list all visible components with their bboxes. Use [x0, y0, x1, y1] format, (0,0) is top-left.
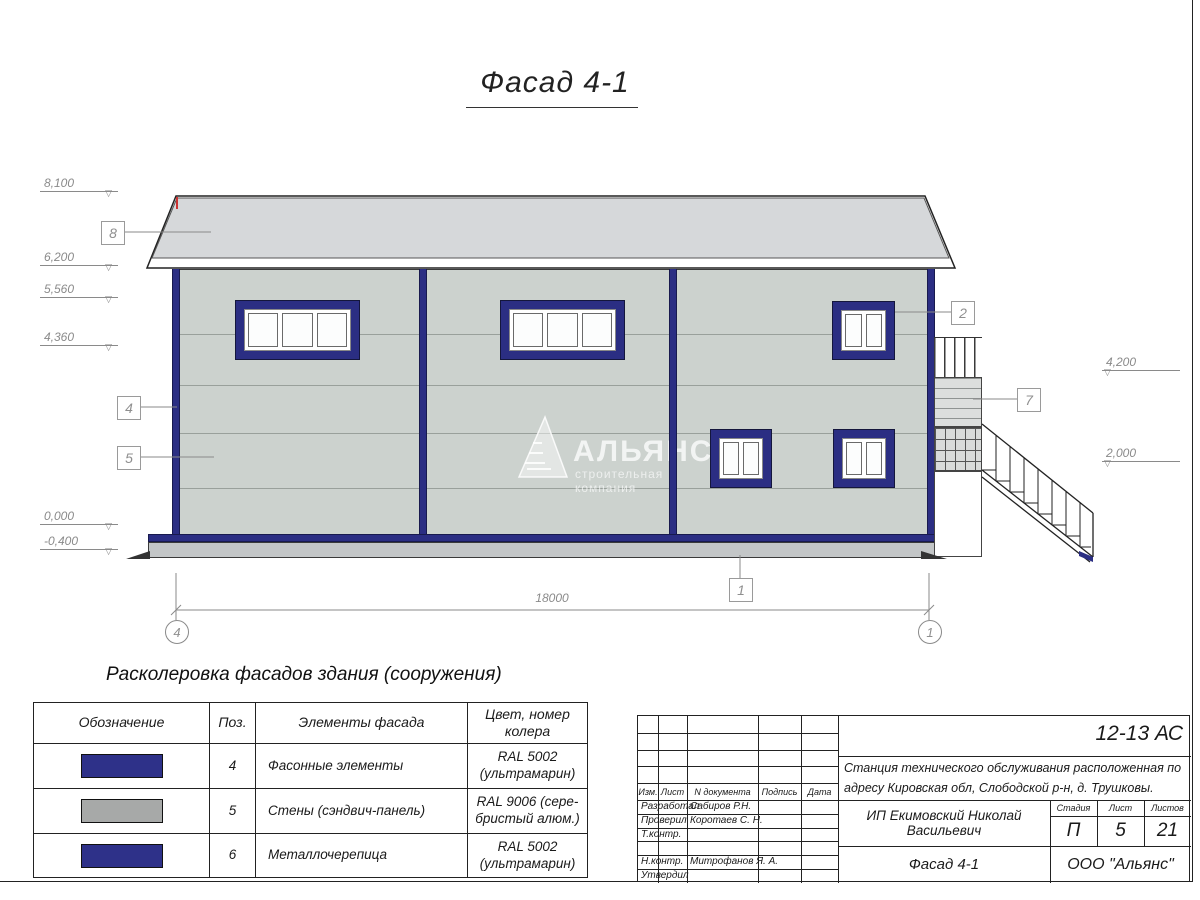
callout-box-plinth: 1: [729, 578, 753, 602]
swatch-ultramarine: [81, 844, 163, 868]
callout-box-wall: 5: [117, 446, 141, 470]
tb-col-sign: Подпись: [758, 783, 801, 800]
elevation-flag-icon: ▽: [105, 294, 112, 305]
elevation-mark: 4,360▽: [40, 330, 118, 346]
watermark-name: АЛЬЯНС: [573, 435, 713, 469]
callout-box-corner: 4: [117, 396, 141, 420]
callout-box-roof: 8: [101, 221, 125, 245]
callout-box-stair: 7: [1017, 388, 1041, 412]
window-pane: [845, 314, 862, 347]
tb-sheets-label: Листов: [1144, 800, 1191, 816]
elevation-mark: 2,000▽: [1102, 446, 1180, 462]
window-pane: [723, 442, 739, 475]
legend-col-pos: Поз.: [210, 703, 256, 744]
legend-col-designation: Обозначение: [34, 703, 210, 744]
window-pane: [866, 442, 882, 475]
tb-staff-role: Н.контр.: [641, 855, 683, 869]
window-lower-1: [710, 429, 772, 488]
tb-staff-name: Митрофанов Я. А.: [690, 855, 778, 869]
drawing-sheet: Фасад 4-1 АЛЬЯНС строительная компания: [0, 0, 1200, 900]
stair-foot: [1079, 551, 1093, 562]
panel-joint-line: [172, 385, 935, 386]
plinth: [148, 542, 935, 558]
panel-joint-line: [172, 488, 935, 489]
window-pane: [582, 313, 612, 347]
window-pane: [513, 313, 543, 347]
tb-line: [638, 750, 838, 751]
axis-bubble-right: 1: [918, 620, 942, 644]
facade-band-mid1: [419, 269, 427, 535]
facade-band-mid2: [669, 269, 677, 535]
tb-company: ООО "Альянс": [1050, 846, 1191, 883]
elevation-mark: 5,560▽: [40, 282, 118, 298]
tb-col-date: Дата: [801, 783, 838, 800]
tb-staff-name: Коротаев С. Н.: [690, 814, 763, 828]
drawing-title-underline: [466, 107, 638, 108]
swatch-silver: [81, 799, 163, 823]
tb-project-description: Станция технического обслуживания распол…: [844, 758, 1188, 798]
tb-sheet-label: Лист: [1097, 800, 1144, 816]
window-pane: [866, 314, 883, 347]
tb-staff-role: Утвердил: [641, 869, 689, 883]
legend-row-pos: 6: [210, 834, 256, 877]
facade-band-left: [172, 269, 180, 535]
legend-row-pos: 5: [210, 789, 256, 834]
tb-col-doc: N документа: [687, 783, 758, 800]
window-lower-2: [833, 429, 895, 488]
legend-row-color: RAL 5002 (ультрамарин): [468, 834, 587, 877]
landing-railing: [934, 337, 982, 378]
window-pane: [282, 313, 312, 347]
tb-staff-role: Проверил: [641, 814, 687, 828]
window-pane: [547, 313, 577, 347]
elevation-mark: 4,200▽: [1102, 355, 1180, 371]
tb-doc-code: 12-13 АС: [838, 722, 1183, 746]
legend-row-swatch: [34, 744, 210, 789]
legend-col-color: Цвет, номер колера: [468, 703, 587, 744]
tb-client: ИП Екимовский Николай Васильевич: [838, 800, 1050, 846]
elevation-flag-icon: ▽: [105, 262, 112, 273]
elevation-mark: 0,000▽: [40, 509, 118, 525]
watermark-pyramid-icon: [505, 413, 571, 483]
elevation-flag-icon: ▽: [1104, 367, 1111, 378]
elevation-flag-icon: ▽: [105, 188, 112, 199]
watermark-tagline: строительная компания: [575, 467, 705, 495]
tb-col-list: Лист: [658, 783, 687, 800]
landing-truss: [934, 427, 982, 471]
elevation-flag-icon: ▽: [105, 546, 112, 557]
landing-parapet: [934, 377, 982, 427]
elevation-flag-icon: ▽: [105, 521, 112, 532]
window-upper-1: [235, 300, 360, 360]
elevation-mark: 8,100▽: [40, 176, 118, 192]
window-upper-2: [500, 300, 625, 360]
legend-table: Обозначение Поз. Элементы фасада Цвет, н…: [33, 702, 588, 878]
legend-row-element: Стены (сэндвич-панель): [256, 789, 468, 834]
tb-stage-label: Стадия: [1050, 800, 1097, 816]
legend-row-color: RAL 5002 (ультрамарин): [468, 744, 587, 789]
window-pane: [248, 313, 278, 347]
tb-stage-value: П: [1050, 816, 1097, 846]
roof: [147, 196, 955, 268]
tb-line: [638, 766, 838, 767]
title-block: Изм. Лист N документа Подпись Дата Разра…: [637, 715, 1190, 882]
swatch-ultramarine: [81, 754, 163, 778]
tb-line: [638, 733, 838, 734]
tb-col-izm: Изм.: [638, 783, 658, 800]
elevation-flag-icon: ▽: [1104, 458, 1111, 469]
elevation-mark: 6,200▽: [40, 250, 118, 266]
tb-view-title: Фасад 4-1: [838, 846, 1050, 883]
sheet-frame-right: [1192, 0, 1193, 882]
drawing-title: Фасад 4-1: [400, 66, 710, 100]
legend-heading: Расколеровка фасадов здания (сооружения): [106, 664, 502, 686]
tb-line: [838, 756, 1191, 757]
window-pane: [846, 442, 862, 475]
legend-row-color: RAL 9006 (сере­бристый алюм.): [468, 789, 587, 834]
tb-staff-name: Сабиров Р.Н.: [690, 800, 751, 814]
legend-col-elements: Элементы фасада: [256, 703, 468, 744]
elevation-flag-icon: ▽: [105, 342, 112, 353]
legend-row-element: Фасонные элементы: [256, 744, 468, 789]
elevation-mark: -0,400▽: [40, 534, 118, 550]
ground-wedge-left: [126, 551, 150, 559]
tb-sheets-value: 21: [1144, 816, 1191, 846]
tb-sheet-value: 5: [1097, 816, 1144, 846]
stair-support-column: [934, 471, 982, 557]
facade-band-bottom: [148, 534, 935, 542]
dimension-label: 18000: [512, 591, 592, 605]
stair-flight: [982, 424, 1093, 562]
legend-row-pos: 4: [210, 744, 256, 789]
legend-row-element: Металлочерепица: [256, 834, 468, 877]
tb-staff-role: Т.контр.: [641, 828, 681, 842]
window-pane: [743, 442, 759, 475]
callout-box-window: 2: [951, 301, 975, 325]
legend-row-swatch: [34, 834, 210, 877]
legend-row-swatch: [34, 789, 210, 834]
window-upper-3: [832, 301, 895, 360]
window-pane: [317, 313, 347, 347]
axis-bubble-left: 4: [165, 620, 189, 644]
